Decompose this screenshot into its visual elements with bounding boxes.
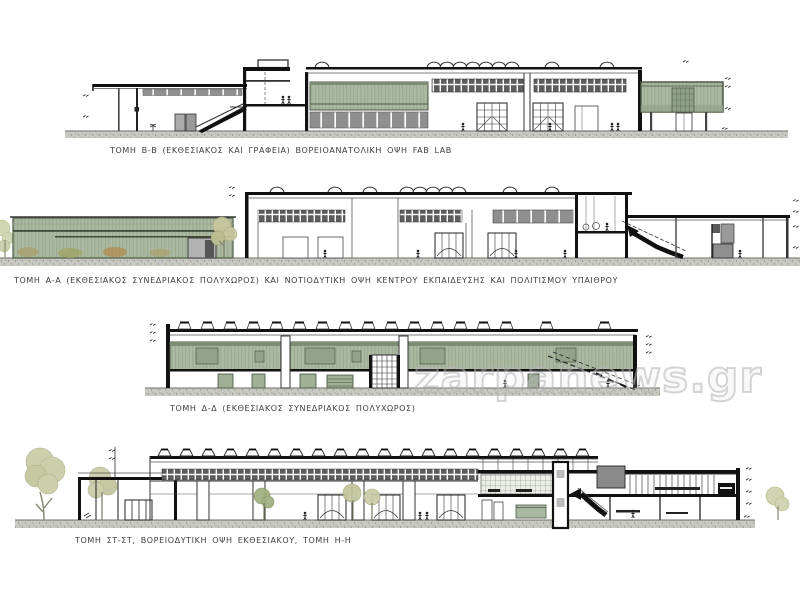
fab-lab-box	[641, 78, 731, 132]
caption-section-st-st: ΤΟΜΗ ΣΤ-ΣΤ, ΒΟΡΕΙΟΔΥΤΙΚΗ ΟΨΗ ΕΚΘΕΣΙΑΚΟΥ,…	[75, 536, 351, 545]
bush	[58, 248, 82, 258]
green-glazed-building	[10, 217, 236, 258]
gray-panel-band	[310, 112, 428, 128]
bush	[18, 247, 38, 257]
main-hall-elevation	[306, 61, 689, 132]
grid-door	[477, 103, 507, 131]
exhibition-hall-cut	[166, 323, 640, 391]
grid-door	[125, 500, 152, 520]
ground-strip	[0, 258, 800, 266]
canopy-wing	[93, 84, 247, 133]
caption-section-d-d: ΤΟΜΗ Δ-Δ (ΕΚΘΕΣΙΑΚΟΣ ΣΥΝΕΔΡΙΑΚΟΣ ΠΟΛΥΧΩΡ…	[170, 404, 415, 413]
gray-volume	[597, 466, 625, 488]
section-h-h-cut	[478, 459, 752, 528]
pier	[403, 481, 415, 520]
right-wing	[628, 200, 799, 259]
caption-section-b-b: ΤΟΜΗ Β-Β (ΕΚΘΕΣΙΑΚΟΣ ΚΑΙ ΓΡΑΦΕΙΑ) ΒΟΡΕΙΟ…	[110, 146, 452, 155]
green-glazing-band	[310, 82, 428, 110]
drawing-section-b-b	[65, 60, 788, 138]
stair-b	[198, 107, 247, 133]
green-door	[252, 374, 265, 388]
gray-door	[175, 114, 185, 131]
ground-strip	[65, 131, 788, 138]
ground-strip	[15, 520, 755, 528]
tree	[766, 487, 789, 520]
architectural-sheet: ΤΟΜΗ Β-Β (ΕΚΘΕΣΙΑΚΟΣ ΚΑΙ ΓΡΑΦΕΙΑ) ΒΟΡΕΙΟ…	[0, 0, 800, 601]
tree	[0, 220, 14, 258]
green-panel	[516, 505, 546, 518]
door	[713, 244, 733, 258]
green-door	[300, 374, 316, 388]
tree	[88, 467, 117, 520]
clerestory-band	[258, 210, 345, 222]
pier	[281, 336, 290, 388]
grid-door	[437, 495, 465, 520]
clerestory-band	[432, 79, 524, 92]
entrance-grid	[372, 355, 397, 388]
gray-panel-band	[493, 210, 573, 223]
tree	[25, 448, 65, 520]
drawing-section-d-d	[145, 323, 660, 397]
clerestory-band	[162, 469, 478, 480]
drawing-section-a-a	[0, 187, 800, 267]
green-door	[218, 374, 233, 388]
grid-door	[488, 233, 516, 258]
pier	[197, 481, 209, 520]
hall-section	[245, 187, 577, 258]
pier	[399, 336, 408, 388]
tower-cut	[243, 60, 308, 131]
grid-door	[435, 233, 463, 258]
bush	[150, 249, 170, 257]
grid-door	[318, 495, 346, 520]
ground-strip	[145, 388, 660, 396]
drawing-section-st-st	[15, 447, 789, 528]
stair-arrow	[570, 488, 581, 500]
drawing-canvas	[0, 0, 800, 601]
stair-tower-cut	[575, 192, 686, 258]
bush	[103, 247, 127, 257]
grid-door	[533, 103, 563, 131]
caption-section-a-a: ΤΟΜΗ Α-Α (ΕΚΘΕΣΙΑΚΟΣ ΣΥΝΕΔΡΙΑΚΟΣ ΠΟΛΥΧΩΡ…	[14, 276, 618, 285]
dark-box	[718, 483, 735, 496]
plant	[150, 124, 156, 131]
